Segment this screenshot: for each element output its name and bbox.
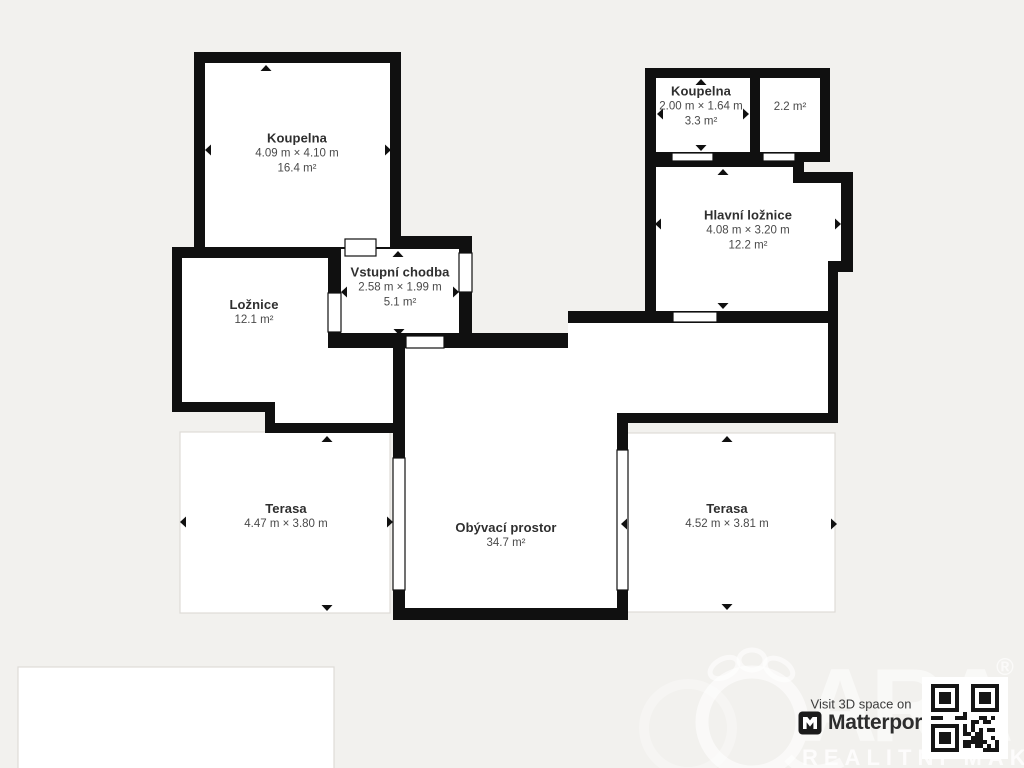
matterport-m-icon [798,711,822,735]
matterport-logo: Matterport [798,711,929,735]
qr-code [922,677,1008,759]
floor-plan-page: A R A ® REALITNÍ MAKLÉŘI [0,0,1024,768]
matterport-wordmark: Matterport [828,711,929,735]
visit-3d-space-text: Visit 3D space on [811,697,912,712]
matterport-branding: Visit 3D space on Matterport [0,0,1024,768]
